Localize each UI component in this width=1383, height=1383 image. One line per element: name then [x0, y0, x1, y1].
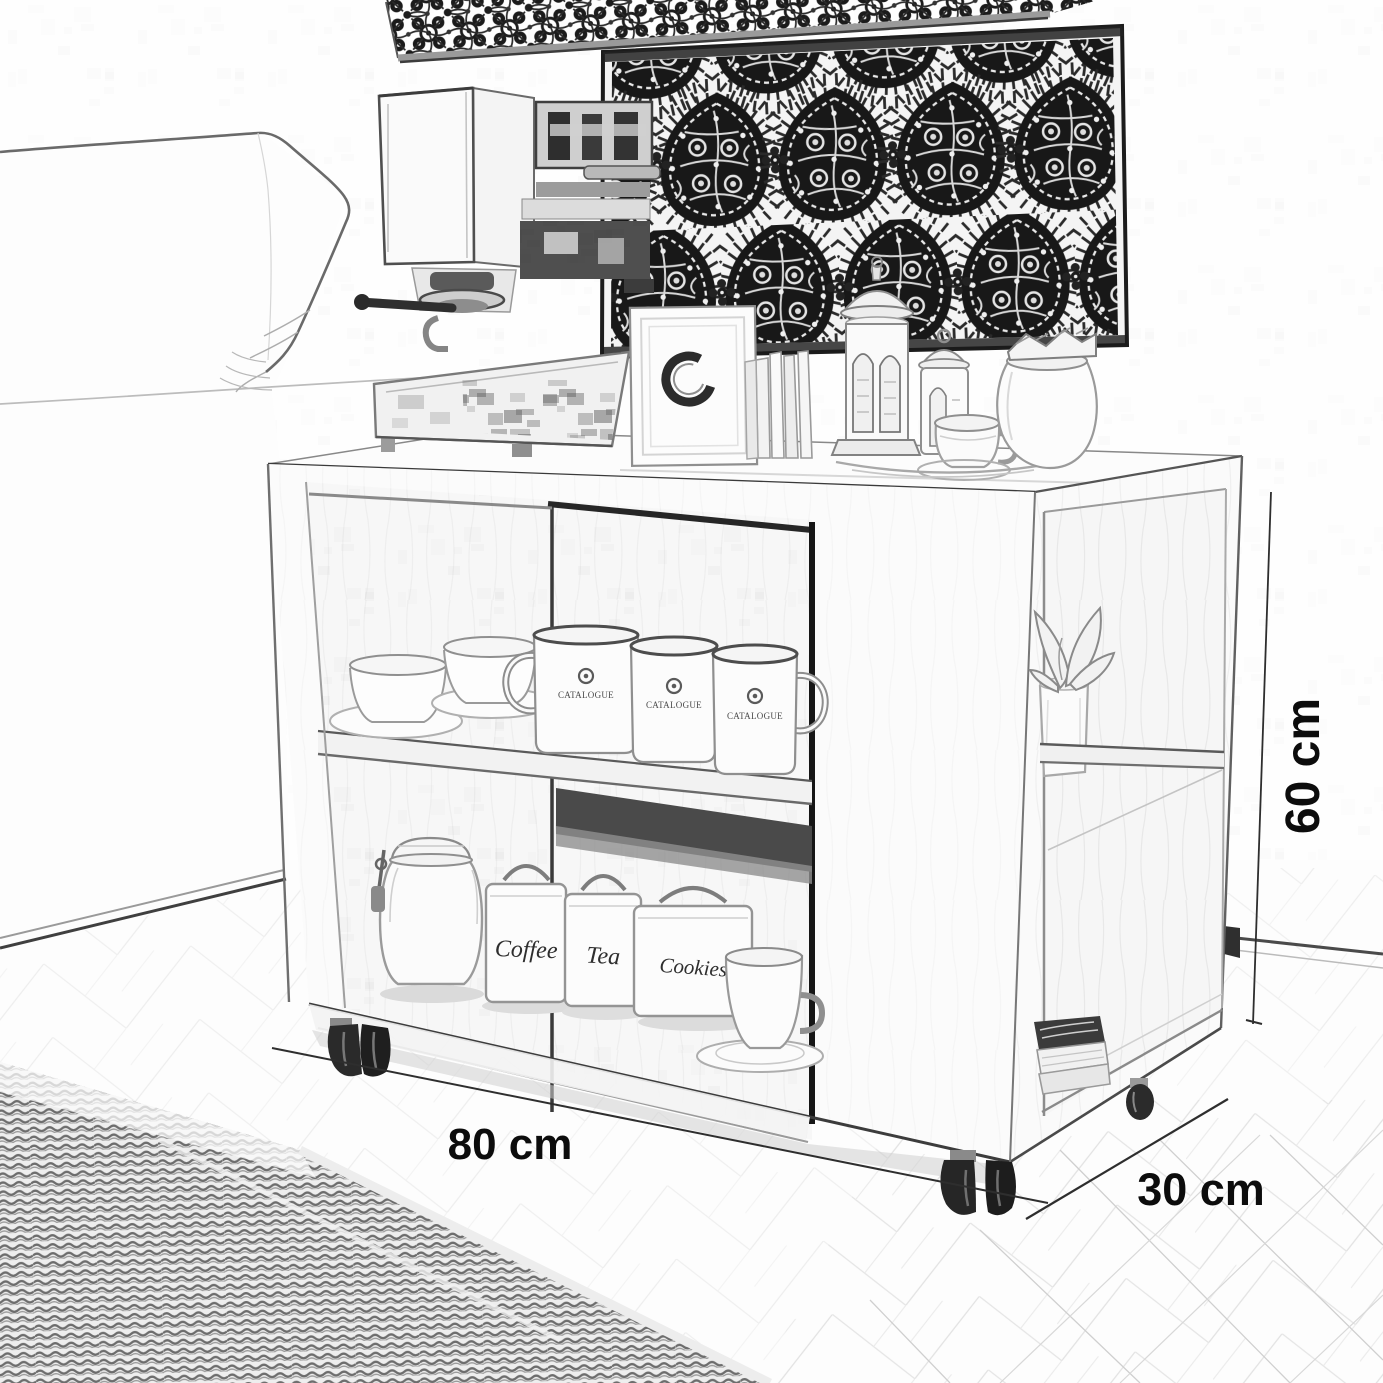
svg-text:CATALOGUE: CATALOGUE	[727, 711, 783, 721]
svg-text:Coffee: Coffee	[494, 936, 558, 964]
svg-text:30 cm: 30 cm	[1137, 1164, 1265, 1215]
svg-text:Cookies: Cookies	[659, 953, 728, 982]
svg-text:Tea: Tea	[586, 943, 621, 971]
svg-text:80 cm: 80 cm	[448, 1120, 573, 1169]
svg-text:CATALOGUE: CATALOGUE	[646, 700, 702, 710]
svg-text:CATALOGUE: CATALOGUE	[558, 690, 614, 700]
svg-text:60 cm: 60 cm	[1277, 698, 1330, 834]
